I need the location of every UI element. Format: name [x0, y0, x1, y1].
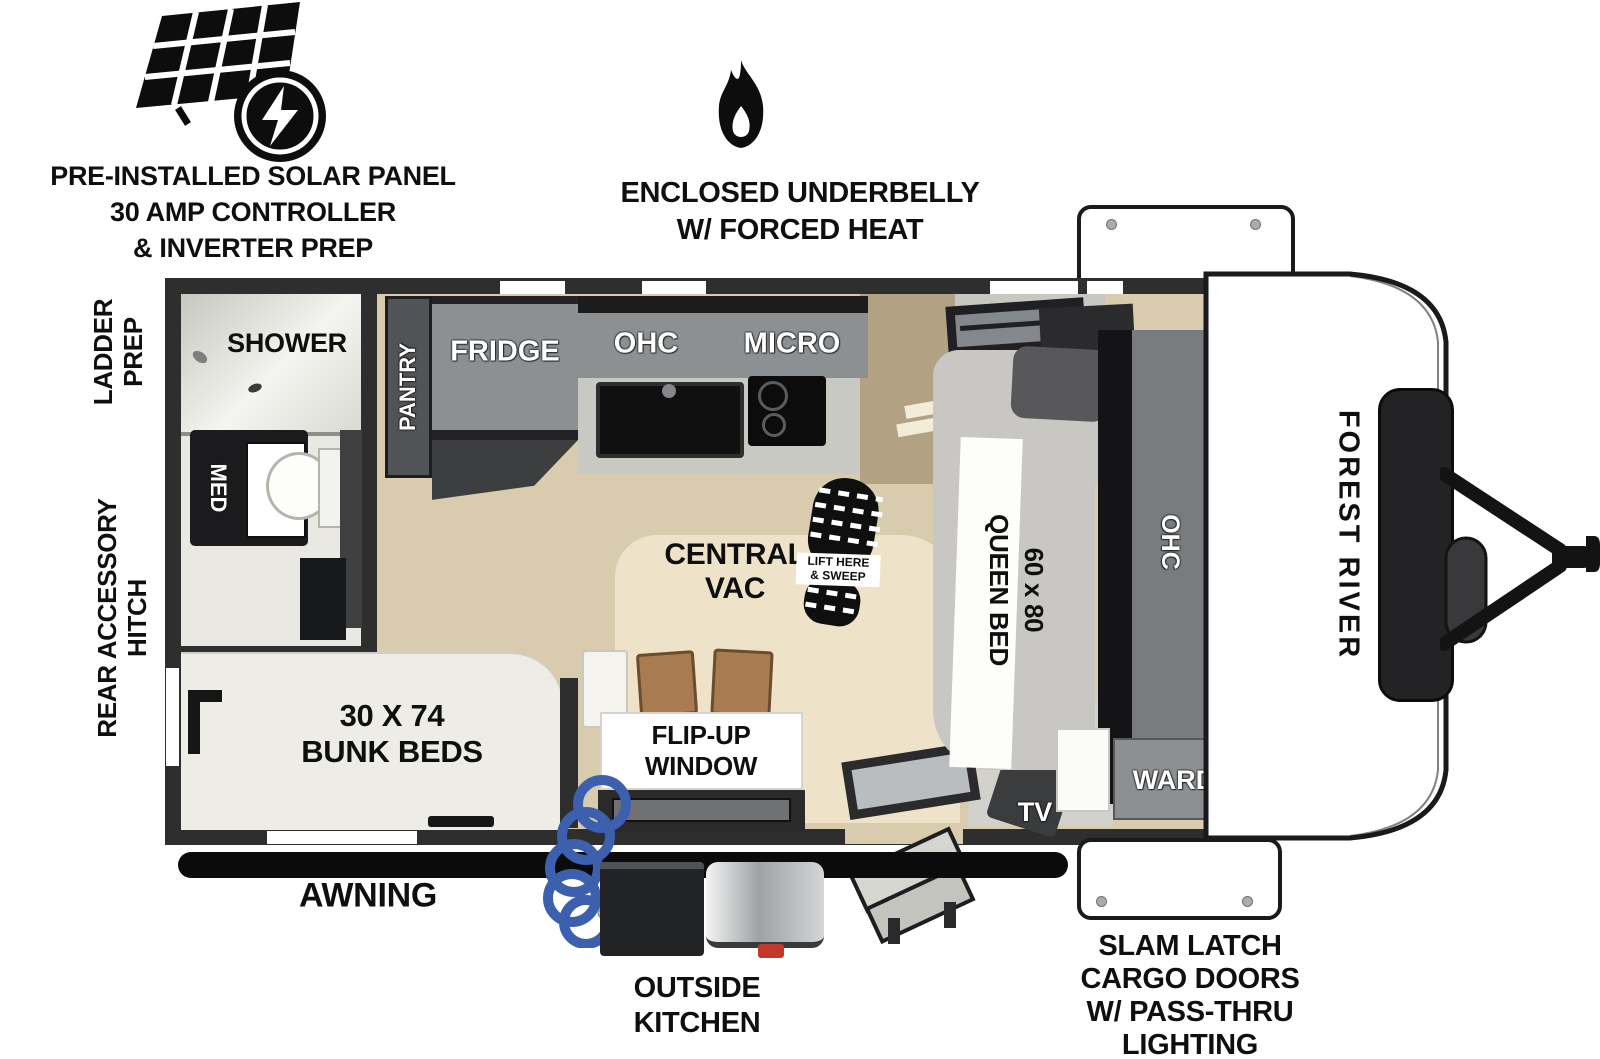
brand-label: FOREST RIVER — [1331, 410, 1366, 660]
nightstand — [1056, 728, 1110, 812]
stool — [636, 650, 698, 718]
window — [500, 281, 565, 294]
screw-icon — [1250, 219, 1261, 230]
floorplan-diagram: SHOWER MED 30 X 74 BUNK BEDS PANTRY FRID… — [0, 0, 1600, 1059]
screw-icon — [1242, 896, 1253, 907]
solar-panel-icon — [128, 0, 338, 168]
window — [642, 281, 706, 294]
central-vac-label: CENTRAL VAC — [664, 538, 805, 606]
window — [990, 281, 1078, 294]
bath-cabinet — [300, 558, 346, 640]
tongue-hitch-icon — [1440, 450, 1600, 670]
outside-kitchen-label: OUTSIDE KITCHEN — [634, 971, 761, 1041]
fridge-label: FRIDGE — [450, 335, 560, 370]
kitchen-ohc-label: OHC — [614, 327, 678, 362]
window — [1087, 281, 1123, 294]
bunk-label: 30 X 74 BUNK BEDS — [301, 698, 483, 770]
awning-label: AWNING — [299, 876, 437, 917]
micro-label: MICRO — [744, 327, 841, 362]
step-leg — [944, 902, 956, 928]
window — [267, 831, 417, 844]
solar-label: PRE-INSTALLED SOLAR PANEL 30 AMP CONTROL… — [50, 158, 456, 266]
ohc-back-strip — [578, 296, 868, 313]
burner-icon — [762, 413, 786, 437]
tank-cap — [758, 944, 784, 958]
bed-ohc-label: OHC — [1155, 514, 1185, 570]
stool — [710, 648, 773, 717]
sweep-label-line2: & SWEEP — [810, 568, 866, 584]
window — [166, 668, 179, 766]
rear-hitch-label: REAR ACCESSORY HITCH — [92, 498, 152, 737]
pantry-label: PANTRY — [395, 343, 421, 431]
flip-window-label: FLIP-UP WINDOW — [645, 720, 757, 782]
outside-tank — [706, 862, 824, 948]
screw-icon — [1106, 219, 1117, 230]
outside-griddle — [600, 862, 704, 956]
screw-icon — [1096, 896, 1107, 907]
ladder-prep-label: LADDER PREP — [88, 299, 148, 406]
underbelly-label: ENCLOSED UNDERBELLY W/ FORCED HEAT — [621, 175, 980, 249]
flame-icon — [705, 58, 777, 162]
cargo-door-bottom — [1077, 838, 1282, 920]
shower-pan — [181, 294, 361, 436]
queen-bed-label: 60 x 80 QUEEN BED — [981, 514, 1051, 666]
shower-label: SHOWER — [227, 327, 347, 359]
burner-icon — [758, 381, 788, 411]
cargo-doors-label: SLAM LATCH CARGO DOORS W/ PASS-THRU LIGH… — [1080, 930, 1299, 1059]
med-label: MED — [205, 464, 231, 513]
bunk-ladder-bar — [428, 816, 494, 827]
tv-label: TV — [1018, 796, 1053, 828]
bunk-bracket — [188, 690, 222, 702]
faucet-icon — [662, 384, 676, 398]
bed-pillow — [1010, 346, 1110, 423]
step-leg — [888, 918, 900, 944]
